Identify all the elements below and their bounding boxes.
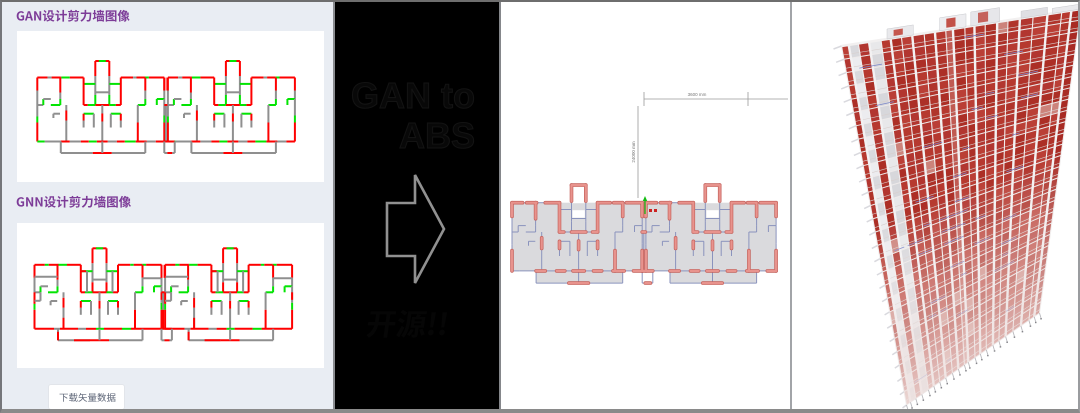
svg-text:3600 mm: 3600 mm xyxy=(688,92,707,97)
svg-text:24000 mm: 24000 mm xyxy=(631,141,636,163)
